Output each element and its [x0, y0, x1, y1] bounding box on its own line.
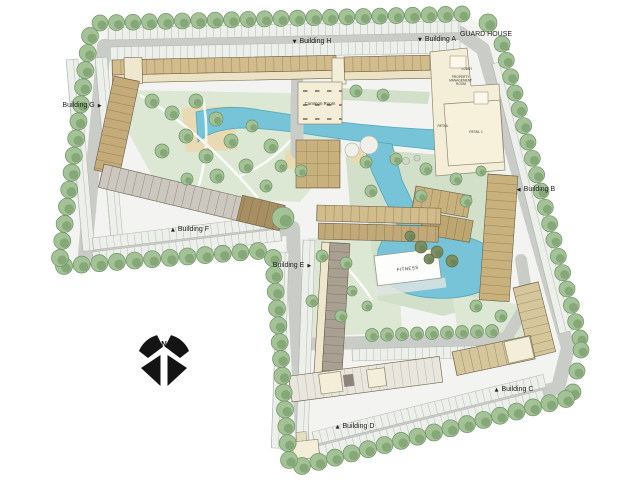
- tree: [277, 401, 294, 418]
- label-retail-1: RETAIL 1: [469, 130, 483, 134]
- tree: [295, 165, 307, 177]
- tree: [224, 134, 238, 148]
- tree: [524, 150, 540, 166]
- tree: [409, 428, 426, 445]
- tree: [520, 134, 536, 150]
- tree: [269, 300, 286, 317]
- tree: [275, 160, 287, 172]
- tree: [260, 180, 272, 192]
- tree: [335, 310, 347, 322]
- tree: [411, 327, 424, 340]
- tree: [108, 253, 125, 270]
- tree: [210, 169, 224, 183]
- tree: [492, 407, 509, 424]
- tree: [347, 286, 357, 296]
- tree: [559, 281, 575, 297]
- tree: [550, 248, 566, 264]
- tree: [405, 7, 421, 23]
- tree: [79, 45, 96, 62]
- tree: [289, 10, 305, 26]
- tree: [52, 250, 69, 267]
- site-plan-canvas: FITNESS ▼Building H ▼Building A ◀Buildin…: [0, 0, 640, 480]
- tree: [546, 232, 562, 248]
- tree: [141, 14, 157, 30]
- tree: [199, 149, 213, 163]
- tree: [58, 198, 75, 215]
- tree: [125, 14, 141, 30]
- tree: [475, 411, 492, 428]
- tree: [365, 185, 377, 197]
- tree: [442, 420, 459, 437]
- tree: [568, 314, 584, 330]
- tree: [145, 94, 159, 108]
- tree: [542, 216, 558, 232]
- tree: [91, 255, 108, 272]
- tree: [246, 120, 258, 132]
- tree: [306, 295, 318, 307]
- tree: [494, 36, 510, 52]
- tree: [275, 384, 292, 401]
- tree: [470, 300, 482, 312]
- tree: [438, 6, 454, 22]
- tree: [343, 445, 360, 462]
- tree: [165, 106, 179, 120]
- tree: [340, 257, 352, 269]
- tree: [479, 14, 497, 32]
- shrub-cluster: [405, 231, 415, 241]
- tree: [68, 130, 85, 147]
- tree: [264, 139, 278, 153]
- tree: [82, 28, 99, 45]
- tree: [174, 13, 190, 29]
- tree: [507, 85, 523, 101]
- tree: [73, 256, 90, 273]
- tree: [569, 363, 585, 379]
- tree: [179, 129, 193, 143]
- tree: [426, 424, 443, 441]
- tree: [191, 13, 207, 29]
- tree: [495, 310, 507, 322]
- tree: [278, 418, 295, 435]
- tree: [70, 113, 87, 130]
- tree: [460, 195, 472, 207]
- tree: [274, 367, 291, 384]
- tree: [390, 153, 402, 165]
- tree: [273, 11, 289, 27]
- tree: [272, 207, 294, 229]
- tree: [214, 245, 231, 262]
- tree: [197, 247, 214, 264]
- tree: [511, 101, 527, 117]
- tree: [573, 342, 589, 358]
- tree: [362, 301, 372, 311]
- tree: [306, 10, 322, 26]
- tree: [498, 52, 514, 68]
- tree: [232, 244, 249, 261]
- tree: [486, 325, 499, 338]
- tree: [525, 399, 542, 416]
- shrub-cluster: [424, 254, 434, 264]
- tree: [360, 156, 372, 168]
- tree: [250, 243, 267, 260]
- tree: [471, 325, 484, 338]
- shrub-cluster: [415, 241, 427, 253]
- tree: [56, 215, 73, 232]
- tree: [372, 8, 388, 24]
- tree: [281, 452, 298, 469]
- island-deck: [345, 143, 359, 157]
- tree: [508, 403, 525, 420]
- tree: [503, 69, 519, 85]
- tree: [224, 12, 240, 28]
- tree: [54, 232, 71, 249]
- tree: [189, 94, 203, 108]
- tree: [75, 79, 92, 96]
- tree: [360, 441, 377, 458]
- tree: [271, 334, 288, 351]
- central-cluster: [296, 140, 340, 188]
- tree: [426, 327, 439, 340]
- label-retail: RETAIL: [438, 124, 449, 128]
- tree: [273, 351, 290, 368]
- tree: [161, 249, 178, 266]
- tree: [310, 453, 327, 470]
- tree: [366, 329, 379, 342]
- tree: [350, 85, 362, 97]
- tree: [558, 391, 575, 408]
- tree: [270, 317, 287, 334]
- tree: [388, 8, 404, 24]
- tree: [421, 7, 437, 23]
- tree: [454, 6, 470, 22]
- north-label: N: [161, 340, 167, 349]
- tree: [181, 173, 193, 185]
- tree: [377, 89, 389, 101]
- shrub-cluster: [446, 255, 458, 267]
- tree: [144, 251, 161, 268]
- tree: [529, 167, 545, 183]
- tree: [77, 62, 94, 79]
- tree: [322, 9, 338, 25]
- tree: [355, 8, 371, 24]
- tree: [63, 164, 80, 181]
- tree: [279, 435, 296, 452]
- tree: [393, 432, 410, 449]
- tree: [396, 328, 409, 341]
- tree: [415, 190, 427, 202]
- tree: [476, 166, 486, 176]
- tree: [441, 326, 454, 339]
- tree: [327, 449, 344, 466]
- label-lobby: LOBBY: [462, 67, 474, 71]
- tree: [563, 297, 579, 313]
- tree: [158, 13, 174, 29]
- tree: [555, 265, 571, 281]
- tree: [155, 144, 169, 158]
- tree: [420, 163, 432, 175]
- tree: [108, 15, 124, 31]
- tree: [240, 11, 256, 27]
- tree: [179, 248, 196, 265]
- tree: [541, 395, 558, 412]
- north-compass: N: [139, 333, 189, 386]
- label-guard-house: GUARD HOUSE: [460, 31, 512, 38]
- tree: [456, 326, 469, 339]
- tree: [450, 173, 462, 185]
- label-common-room: Common Room: [305, 101, 336, 106]
- tree: [126, 252, 143, 269]
- tree: [316, 250, 328, 262]
- tree: [61, 181, 78, 198]
- tree: [537, 199, 553, 215]
- tree: [339, 9, 355, 25]
- tree: [209, 112, 223, 126]
- tree: [516, 118, 532, 134]
- tree: [381, 328, 394, 341]
- tree: [65, 147, 82, 164]
- tree: [239, 159, 253, 173]
- tree: [257, 11, 273, 27]
- tree: [267, 283, 284, 300]
- tree: [376, 437, 393, 454]
- tree: [207, 12, 223, 28]
- island-deck: [360, 136, 378, 154]
- tree: [459, 416, 476, 433]
